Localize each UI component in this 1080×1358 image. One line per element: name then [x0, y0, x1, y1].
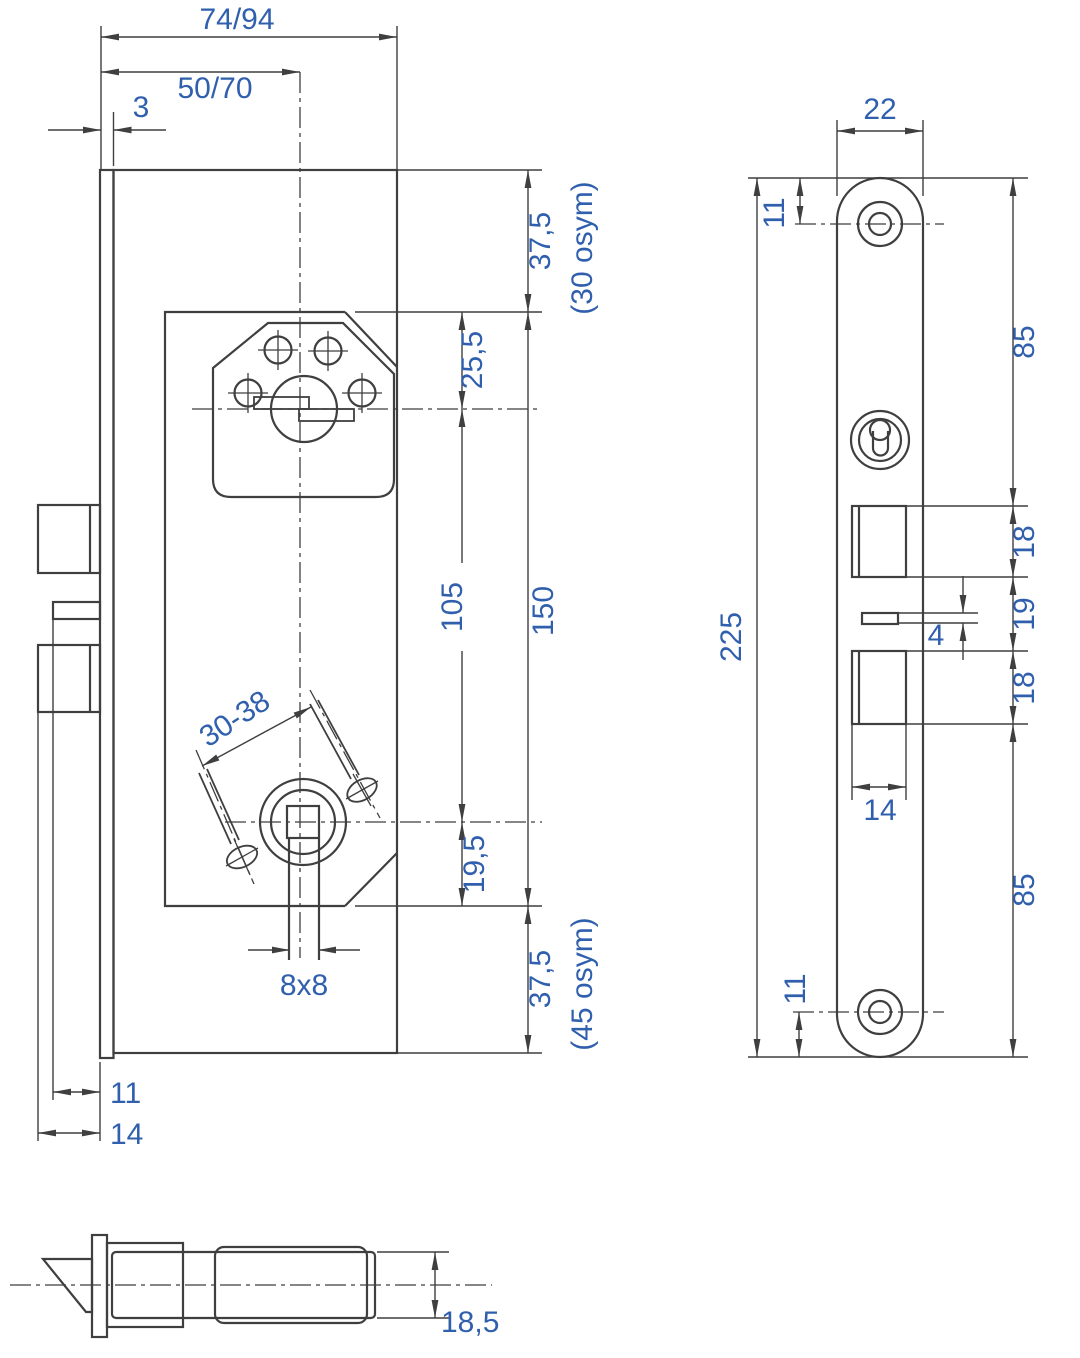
dim-label-spindle-bottom-offset: 19,5	[458, 835, 491, 893]
drawing-background	[0, 0, 1080, 1358]
dim-label-inner-height: 150	[527, 586, 560, 636]
dim-label-spindle-square: 8x8	[280, 969, 328, 1002]
dim-label-bolt-to-bottom: 85	[1008, 873, 1041, 906]
dim-label-cylinder-to-spindle: 105	[436, 582, 469, 632]
dim-label-opening-width: 14	[863, 794, 896, 827]
dim-label-plate-length: 225	[715, 612, 748, 662]
cylinder-hole	[851, 411, 909, 469]
dim-label-latch-opening: 18	[1008, 525, 1041, 558]
technical-drawing: 74/94 50/70 3 37,5 (30 osym) 25,5 105 15…	[0, 0, 1080, 1358]
dim-label-backset: 50/70	[177, 72, 252, 105]
dim-label-case-bottom-offset: 37,5	[524, 950, 557, 1008]
dim-label-plate-width: 22	[863, 93, 896, 126]
dim-label-opening-gap: 19	[1008, 597, 1041, 630]
dim-label-case-top-note: (30 osym)	[566, 181, 599, 314]
dim-label-aux-bolt-throw: 11	[110, 1077, 141, 1110]
dim-label-bolt-opening: 18	[1008, 671, 1041, 704]
dim-label-faceplate-thickness: 3	[133, 91, 150, 124]
dim-label-cylinder-offset: 25,5	[456, 331, 489, 389]
dim-label-deadbolt-throw: 14	[110, 1118, 143, 1151]
dim-label-top-screw-offset: 11	[758, 197, 791, 228]
dim-label-top-to-latch: 85	[1008, 325, 1041, 358]
dim-label-case-top-offset: 37,5	[524, 212, 557, 270]
dim-label-case-bottom-note: (45 osym)	[566, 917, 599, 1050]
dim-label-overall-depth: 74/94	[199, 3, 274, 36]
dim-label-bottom-screw-offset: 11	[779, 973, 812, 1004]
dim-label-aux-bolt-thickness: 4	[928, 619, 945, 652]
dim-label-latch-width: 18,5	[441, 1306, 499, 1339]
